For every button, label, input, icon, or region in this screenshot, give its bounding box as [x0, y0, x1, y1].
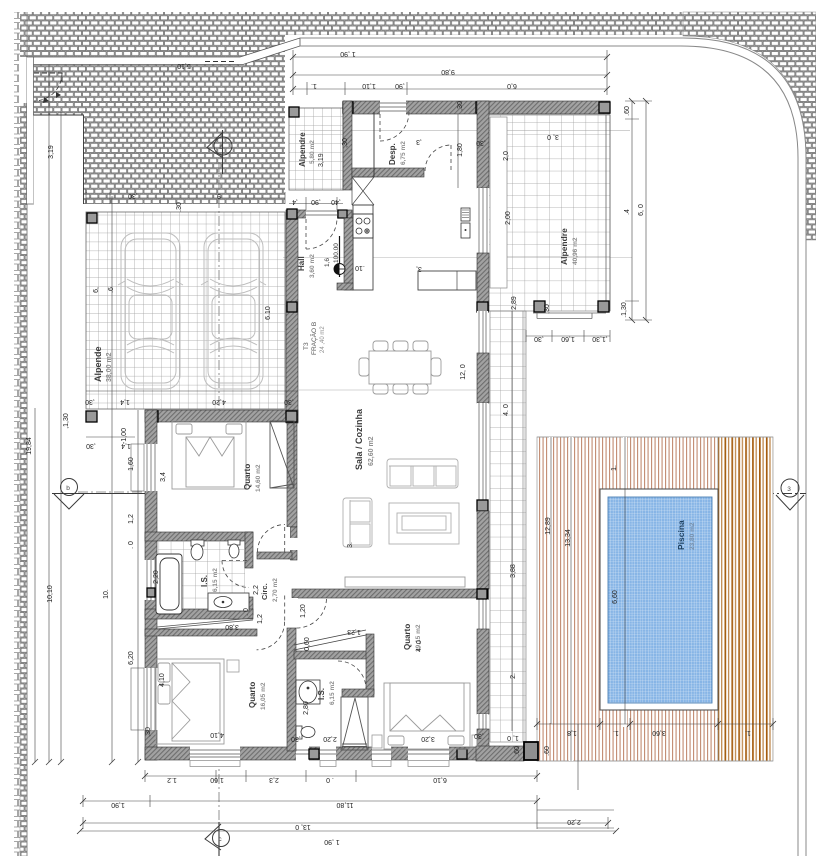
svg-text:3,20: 3,20 [421, 735, 435, 742]
svg-text:6,15 m2: 6,15 m2 [329, 681, 336, 705]
svg-text:,30: ,30 [86, 442, 96, 449]
svg-text:.10: .10 [355, 264, 365, 271]
svg-text:FRAÇÃO B: FRAÇÃO B [309, 322, 318, 355]
svg-text:1 ,90: 1 ,90 [324, 838, 340, 845]
svg-text:1,60: 1,60 [128, 457, 135, 471]
svg-text:,30: ,30 [145, 727, 152, 737]
svg-text:,30: ,30 [284, 398, 294, 405]
svg-text:,40: ,40 [331, 198, 341, 205]
svg-text:.60: .60 [544, 746, 551, 756]
svg-text:Alpendre: Alpendre [298, 132, 307, 167]
svg-text:I.S.: I.S. [200, 575, 209, 587]
svg-text:12,89: 12,89 [545, 517, 552, 535]
svg-text:,30: ,30 [544, 304, 551, 314]
svg-text:6,60: 6,60 [612, 590, 619, 604]
svg-text:1.: 1. [311, 82, 317, 89]
svg-text:4,20: 4,20 [212, 398, 226, 405]
svg-text:11,80: 11,80 [336, 801, 353, 808]
svg-text:1,23: 1,23 [347, 628, 361, 635]
svg-text:1,8: 1,8 [567, 729, 577, 736]
svg-text:1.: 1. [745, 729, 751, 736]
svg-text:10,10: 10,10 [47, 585, 54, 603]
svg-text:.6: .6 [108, 287, 115, 293]
svg-text:. 0: . 0 [326, 776, 334, 783]
svg-text:23,80 m2: 23,80 m2 [689, 522, 696, 550]
svg-text:2,3: 2,3 [269, 776, 279, 783]
svg-text:.30: .30 [176, 202, 183, 212]
svg-text:T3: T3 [303, 342, 310, 350]
svg-text:Alpendre: Alpendre [559, 228, 569, 265]
svg-text:1,20: 1,20 [300, 604, 307, 618]
svg-text:2,2: 2,2 [253, 585, 260, 595]
svg-text:3,19: 3,19 [318, 153, 325, 167]
svg-text:,90: ,90 [395, 82, 405, 89]
svg-text:,4: ,4 [292, 198, 298, 205]
svg-text:Hall: Hall [297, 256, 306, 271]
svg-text:1,6: 1,6 [324, 258, 331, 267]
svg-text:. 0: . 0 [128, 541, 135, 549]
svg-text:62,60 m2: 62,60 m2 [368, 436, 375, 466]
svg-text:,30: ,30 [85, 398, 95, 405]
svg-text:,1,30: ,1,30 [63, 413, 70, 429]
svg-text:,1,30: ,1,30 [592, 335, 608, 342]
svg-text:12, 0: 12, 0 [460, 364, 467, 380]
svg-text:2,80: 2,80 [303, 701, 310, 715]
svg-text:6,15 m2: 6,15 m2 [212, 568, 219, 592]
svg-text:3,19: 3,19 [48, 145, 55, 159]
svg-text:10.: 10. [103, 589, 110, 599]
svg-text:16,05 m2: 16,05 m2 [260, 682, 267, 710]
svg-text:14,60 m2: 14,60 m2 [255, 464, 262, 492]
svg-text:1,60: 1,60 [210, 776, 224, 783]
svg-text:3,: 3, [416, 265, 422, 272]
svg-text:6,10: 6,10 [433, 776, 447, 783]
svg-text:,30: ,30 [534, 335, 544, 342]
svg-text:4,10: 4,10 [210, 731, 224, 738]
svg-text:3,4: 3,4 [160, 472, 167, 482]
svg-text:,3: ,3 [416, 138, 422, 145]
svg-text:3, 0: 3, 0 [547, 133, 559, 140]
svg-text:2,20: 2,20 [323, 735, 337, 742]
svg-text:2,20: 2,20 [153, 570, 160, 584]
svg-text:2,89: 2,89 [511, 296, 518, 310]
svg-text:2,00: 2,00 [505, 211, 512, 225]
svg-text:b: b [66, 485, 70, 492]
svg-text:13,34: 13,34 [565, 529, 572, 547]
svg-text:.4: .4 [624, 209, 631, 215]
svg-text:3,60 m2: 3,60 m2 [309, 254, 316, 278]
svg-text:Quarto: Quarto [403, 624, 412, 650]
svg-text:4,10: 4,10 [159, 673, 166, 687]
svg-text:3,60: 3,60 [652, 729, 666, 736]
svg-text:,30: ,30 [291, 735, 301, 742]
svg-text:4. 0: 4. 0 [416, 640, 423, 652]
svg-text:19,84: 19,84 [26, 437, 33, 455]
svg-text:1.2: 1.2 [167, 776, 177, 783]
svg-text:,30: ,30 [342, 138, 349, 148]
svg-text:.1,30: .1,30 [621, 302, 628, 318]
svg-text:1,2: 1,2 [128, 514, 135, 524]
svg-text:1,60: 1,60 [561, 335, 575, 342]
svg-text:,30: ,30 [457, 101, 464, 111]
svg-text:9.: 9. [215, 192, 221, 199]
svg-text:1 ,90: 1 ,90 [340, 50, 356, 57]
svg-text:1,80: 1,80 [457, 143, 464, 157]
svg-text:Quarto: Quarto [248, 682, 257, 708]
svg-text:. 0: . 0 [243, 608, 250, 616]
svg-text:Alpende: Alpende [93, 346, 103, 382]
svg-text:9,80: 9,80 [441, 68, 455, 75]
svg-text:24 ,40 m2: 24 ,40 m2 [320, 326, 326, 353]
svg-text:6,75 m2: 6,75 m2 [400, 141, 407, 165]
svg-text:1,4: 1,4 [120, 398, 130, 405]
svg-text:b: b [219, 144, 223, 151]
svg-text:2,20: 2,20 [567, 818, 581, 825]
svg-text:Piscina: Piscina [676, 520, 686, 550]
svg-text:1,2: 1,2 [257, 614, 264, 624]
svg-text:2.: 2. [510, 673, 517, 679]
svg-text:,30: ,30 [128, 192, 138, 199]
svg-text:Sala / Cozinha: Sala / Cozinha [354, 408, 364, 470]
svg-text:-1,00: -1,00 [121, 428, 128, 444]
svg-text:3,88: 3,88 [510, 564, 517, 578]
svg-text:3,80: 3,80 [225, 623, 239, 630]
svg-text:4. 0: 4. 0 [503, 404, 510, 416]
svg-text:0,60: 0,60 [304, 637, 311, 651]
svg-text:1.: 1. [611, 465, 618, 471]
svg-text:5,10: 5,10 [177, 62, 191, 69]
svg-text:6, 0: 6, 0 [638, 204, 645, 216]
svg-text:,30: ,30 [474, 732, 484, 739]
svg-text:6,0: 6,0 [507, 82, 517, 89]
svg-text:Quarto: Quarto [243, 464, 252, 490]
svg-text:.60: .60 [624, 106, 631, 116]
svg-text:Circ.: Circ. [260, 583, 269, 600]
svg-text:6.10: 6.10 [265, 306, 272, 320]
svg-text:2,0: 2,0 [503, 151, 510, 161]
svg-text:Desp.: Desp. [388, 143, 397, 165]
svg-text:1.: 1. [613, 729, 619, 736]
svg-text:3: 3 [787, 486, 791, 493]
svg-text:I.S.: I.S. [317, 688, 326, 700]
svg-text:6,20: 6,20 [128, 651, 135, 665]
svg-text:1,90: 1,90 [111, 801, 125, 808]
svg-text:40,96 m2: 40,96 m2 [572, 237, 579, 265]
svg-text:13, 0: 13, 0 [295, 823, 311, 830]
svg-text:1, 0: 1, 0 [507, 734, 519, 741]
svg-text:1,10: 1,10 [362, 82, 376, 89]
svg-text:,90: ,90 [311, 198, 321, 205]
svg-text:6,: 6, [93, 287, 100, 293]
svg-text:2,70 m2: 2,70 m2 [272, 578, 279, 602]
svg-text:5,80 m2: 5,80 m2 [309, 140, 316, 164]
svg-text:3.: 3. [347, 542, 354, 548]
svg-text:,30: ,30 [476, 139, 486, 146]
svg-text:.60: .60 [514, 746, 521, 756]
